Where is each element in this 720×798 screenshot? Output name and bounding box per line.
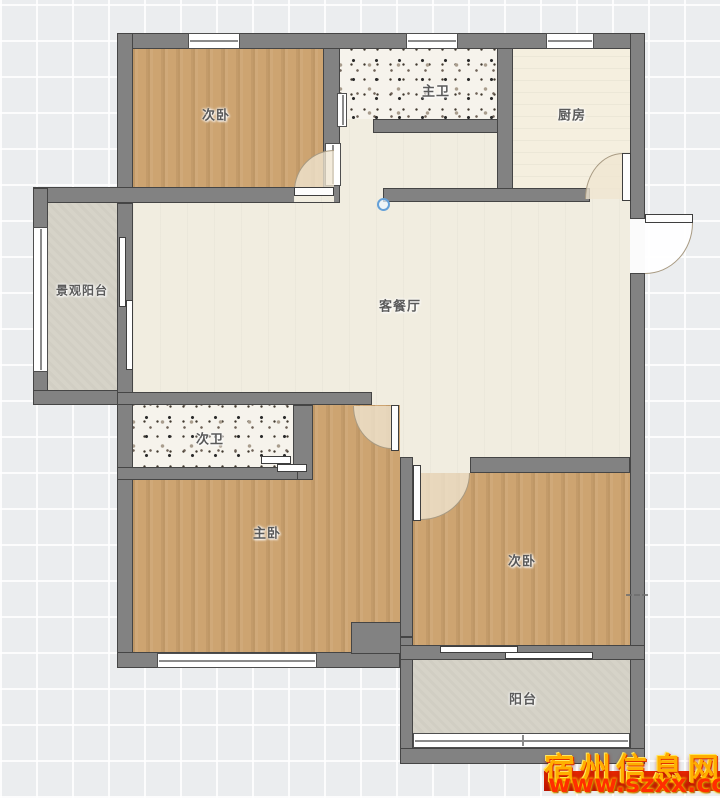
room-label-master-bedroom: 主卧 <box>253 523 281 542</box>
window-pane <box>408 40 456 42</box>
sliding-door-balcony-panel-2 <box>505 652 593 659</box>
wall-bedroom-right-left <box>400 457 413 637</box>
sliding-door-second-bath-panel-2 <box>277 464 307 472</box>
wall-second-bath-bottom <box>117 467 298 480</box>
window-pane <box>342 95 344 125</box>
window-pane <box>40 229 42 370</box>
window-master-bedroom <box>157 653 317 668</box>
master-bath-floor <box>340 48 500 119</box>
master-bedroom-floor <box>133 480 313 652</box>
room-label-kitchen: 厨房 <box>558 105 586 124</box>
room-label-living-dining: 客餐厅 <box>379 296 421 315</box>
room-label-bedroom-right: 次卧 <box>508 551 536 570</box>
window-mullion <box>522 735 524 746</box>
room-label-view-balcony: 景观阳台 <box>56 282 108 299</box>
window-pane <box>159 660 315 662</box>
wall-left-upper <box>117 33 133 189</box>
doorway-entry-threshold <box>630 219 645 273</box>
wall-master-bath-bottom <box>373 119 500 133</box>
door-leaf-entry <box>645 214 693 223</box>
door-leaf-master-bedroom <box>391 405 399 451</box>
floorplan-canvas: 次卧 主卫 厨房 景观阳台 客餐厅 次卫 主卧 次卧 阳台 宿州信息网 www.… <box>0 0 720 798</box>
window-kitchen <box>546 33 594 49</box>
door-leaf-kitchen <box>622 153 631 201</box>
room-label-master-bath: 主卫 <box>422 81 450 100</box>
wall-hall-bottom <box>383 188 590 202</box>
door-leaf-bedroom-right <box>413 465 421 521</box>
window-bedroom-top-left <box>188 33 240 49</box>
window-pane <box>190 40 238 42</box>
window-bath-inner-upper <box>337 93 347 127</box>
watermark-url: www.szxx.com.c <box>548 769 720 798</box>
wall-second-bath-top <box>117 392 372 405</box>
door-leaf-bedroom-top-left <box>294 187 334 196</box>
wall-right-main <box>630 273 645 764</box>
wall-kitchen-left <box>497 48 513 189</box>
room-label-second-bath: 次卫 <box>196 429 224 448</box>
window-master-bath <box>406 33 458 49</box>
blue-dot-marker <box>377 198 390 211</box>
wall-right-upper <box>630 33 645 219</box>
room-label-balcony: 阳台 <box>509 689 537 708</box>
sliding-door-second-bath-panel-1 <box>261 456 291 464</box>
window-view-balcony <box>33 227 48 372</box>
door-arc-entry <box>645 223 693 274</box>
window-pane <box>548 40 592 42</box>
wall-bedroom-right-top <box>470 457 630 473</box>
room-label-bedroom-top-left: 次卧 <box>202 105 230 124</box>
wall-dashed-mark <box>626 594 648 596</box>
sliding-door-view-balcony-panel-2 <box>126 300 133 370</box>
sliding-door-view-balcony-panel-1 <box>119 237 126 307</box>
